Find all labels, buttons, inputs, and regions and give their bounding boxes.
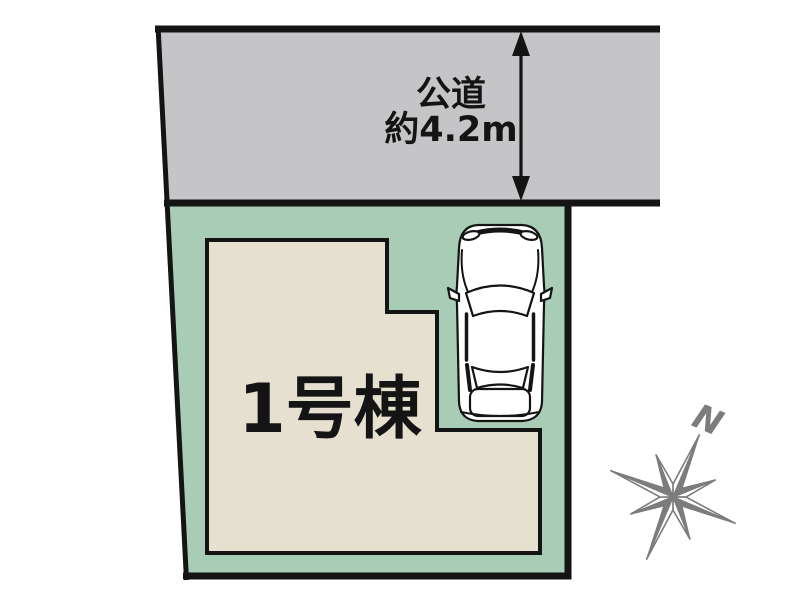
car-windshield	[466, 286, 534, 317]
site-plan-page: 公道 約4.2m 1号棟	[0, 0, 800, 600]
building-label: 1号棟	[238, 370, 422, 449]
site-plan-diagram: 公道 約4.2m 1号棟	[0, 0, 800, 600]
car-icon	[448, 225, 552, 421]
road-name-label: 公道	[416, 75, 486, 115]
compass-rose: N	[584, 375, 776, 586]
compass-north-label: N	[687, 396, 729, 444]
car-trunk	[470, 389, 530, 416]
road-width-label: 約4.2m	[384, 110, 517, 150]
